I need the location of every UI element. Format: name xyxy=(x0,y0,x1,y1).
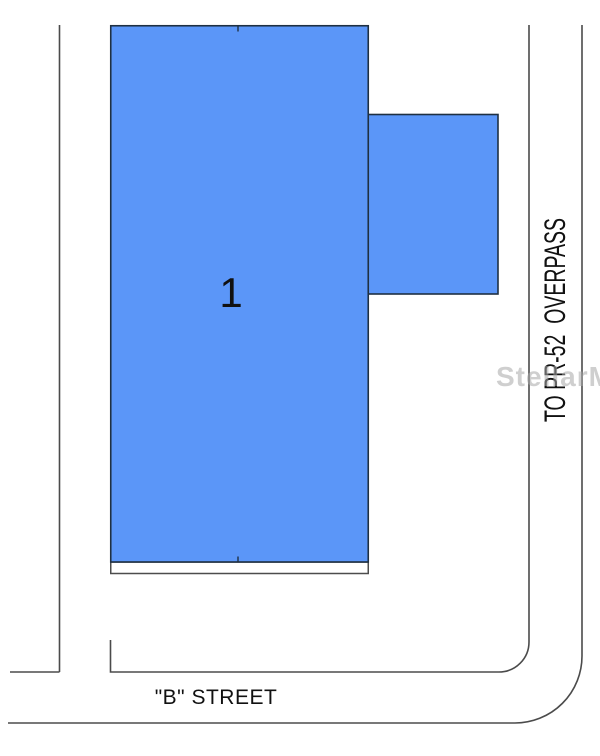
b-street-label: "B" STREET xyxy=(116,686,316,710)
lot-setback-strip xyxy=(111,562,369,574)
lot-number-label: 1 xyxy=(110,272,352,314)
left-street-edge-line xyxy=(10,25,60,672)
stellar-mls-watermark: StellarMLS xyxy=(496,362,600,392)
lot-annex-rect xyxy=(368,115,498,295)
plat-map: 1 "B" STREET TO PR-52 OVERPASS StellarML… xyxy=(0,0,600,756)
